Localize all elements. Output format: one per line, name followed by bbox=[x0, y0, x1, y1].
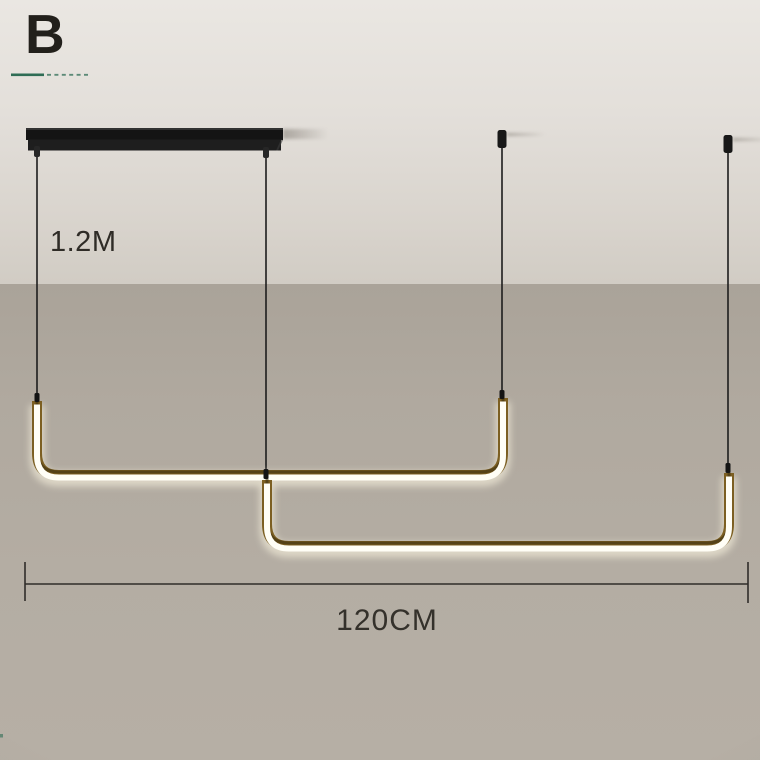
green-accent-line bbox=[0, 74, 90, 738]
fixture-width-label: 120CM bbox=[306, 606, 468, 636]
ceiling-canopy bbox=[26, 128, 328, 158]
led-tube-upper bbox=[37, 395, 503, 479]
variant-label: B bbox=[25, 7, 65, 62]
canopy-shadow bbox=[283, 129, 328, 139]
ceiling-mount-right-1 bbox=[498, 130, 546, 148]
canopy-cable-grip bbox=[263, 147, 269, 158]
lamp-illustration bbox=[0, 0, 760, 760]
width-dimension-line bbox=[25, 562, 748, 603]
cable-length-label: 1.2M bbox=[50, 228, 116, 257]
cable-end-caps bbox=[35, 390, 731, 479]
canopy-cable-grip bbox=[34, 146, 40, 157]
pendant-lamp-product-image: B 1.2M 120CM bbox=[0, 0, 760, 760]
suspension-cables bbox=[37, 148, 728, 474]
ceiling-mount-right-2 bbox=[724, 135, 760, 153]
